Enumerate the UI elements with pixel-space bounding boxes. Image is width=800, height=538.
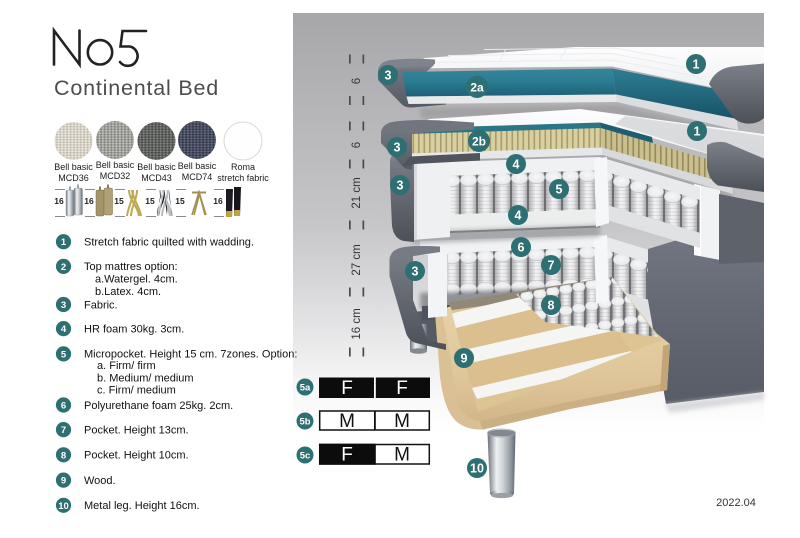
svg-text:2022.04: 2022.04 bbox=[716, 497, 756, 509]
svg-text:16: 16 bbox=[54, 196, 64, 206]
svg-text:4: 4 bbox=[513, 158, 520, 172]
svg-text:2: 2 bbox=[61, 262, 66, 273]
svg-text:1: 1 bbox=[61, 237, 67, 248]
svg-text:Fabric.: Fabric. bbox=[84, 299, 118, 311]
svg-text:8: 8 bbox=[61, 450, 66, 461]
svg-text:2a: 2a bbox=[470, 81, 484, 95]
svg-text:9: 9 bbox=[61, 476, 66, 487]
svg-text:F: F bbox=[341, 445, 353, 466]
svg-text:4: 4 bbox=[515, 209, 522, 223]
svg-text:2b: 2b bbox=[472, 135, 486, 149]
svg-text:Micropocket. Height 15 cm. 7zo: Micropocket. Height 15 cm. 7zones. Optio… bbox=[84, 349, 297, 361]
svg-text:27 cm: 27 cm bbox=[351, 244, 363, 275]
svg-text:15: 15 bbox=[145, 196, 155, 206]
svg-text:15: 15 bbox=[175, 196, 185, 206]
svg-text:6: 6 bbox=[351, 78, 363, 84]
svg-text:MCD43: MCD43 bbox=[141, 173, 172, 183]
svg-text:Bell basic: Bell basic bbox=[54, 162, 93, 172]
svg-text:Roma: Roma bbox=[231, 162, 255, 172]
svg-text:5a: 5a bbox=[300, 383, 311, 394]
svg-text:3: 3 bbox=[385, 69, 392, 83]
svg-text:1: 1 bbox=[694, 125, 701, 139]
svg-text:Top mattres option:: Top mattres option: bbox=[84, 261, 178, 273]
svg-text:3: 3 bbox=[397, 179, 404, 193]
svg-text:7: 7 bbox=[548, 259, 555, 273]
svg-text:M: M bbox=[394, 411, 410, 432]
svg-text:Bell basic: Bell basic bbox=[178, 161, 217, 171]
svg-text:5b: 5b bbox=[299, 417, 310, 428]
svg-text:F: F bbox=[396, 378, 408, 399]
svg-text:b.Latex. 4cm.: b.Latex. 4cm. bbox=[95, 286, 161, 298]
svg-text:4: 4 bbox=[61, 324, 67, 335]
svg-text:stretch fabric: stretch fabric bbox=[217, 173, 269, 183]
svg-text:M: M bbox=[339, 411, 355, 432]
svg-text:6: 6 bbox=[518, 241, 525, 255]
svg-text:Wood.: Wood. bbox=[84, 475, 116, 487]
svg-text:Bell basic: Bell basic bbox=[137, 162, 176, 172]
svg-text:MCD32: MCD32 bbox=[100, 171, 131, 181]
svg-text:Polyurethane foam 25kg. 2cm.: Polyurethane foam 25kg. 2cm. bbox=[84, 400, 233, 412]
svg-text:Stretch fabric quilted with wa: Stretch fabric quilted with wadding. bbox=[84, 237, 254, 249]
svg-text:M: M bbox=[394, 445, 410, 466]
svg-text:21 cm: 21 cm bbox=[351, 177, 363, 208]
svg-text:5: 5 bbox=[61, 349, 67, 360]
svg-text:6: 6 bbox=[61, 401, 66, 412]
svg-text:Pocket. Height 13cm.: Pocket. Height 13cm. bbox=[84, 424, 189, 436]
svg-text:a. Firm/ firm: a. Firm/ firm bbox=[97, 360, 156, 372]
svg-text:8: 8 bbox=[548, 299, 555, 313]
svg-text:3: 3 bbox=[61, 300, 66, 311]
svg-text:Metal leg. Height 16cm.: Metal leg. Height 16cm. bbox=[84, 500, 200, 512]
svg-text:5: 5 bbox=[556, 183, 563, 197]
svg-text:16 cm: 16 cm bbox=[351, 308, 363, 339]
svg-text:Pocket. Height 10cm.: Pocket. Height 10cm. bbox=[84, 450, 189, 462]
svg-text:10: 10 bbox=[58, 501, 69, 512]
svg-text:b. Medium/ medium: b. Medium/ medium bbox=[97, 372, 194, 384]
svg-text:10: 10 bbox=[470, 462, 484, 476]
svg-text:a.Watergel. 4cm.: a.Watergel. 4cm. bbox=[95, 274, 178, 286]
svg-text:9: 9 bbox=[461, 352, 468, 366]
svg-text:MCD74: MCD74 bbox=[182, 172, 213, 182]
svg-text:5c: 5c bbox=[300, 451, 311, 462]
svg-text:F: F bbox=[341, 378, 353, 399]
svg-text:MCD36: MCD36 bbox=[58, 173, 89, 183]
svg-text:3: 3 bbox=[412, 265, 419, 279]
svg-text:16: 16 bbox=[84, 196, 94, 206]
svg-text:c. Firm/ medium: c. Firm/ medium bbox=[97, 385, 176, 397]
svg-text:1: 1 bbox=[693, 58, 700, 72]
svg-text:15: 15 bbox=[114, 196, 124, 206]
svg-text:Bell basic: Bell basic bbox=[96, 160, 135, 170]
svg-text:Continental Bed: Continental Bed bbox=[54, 76, 219, 100]
svg-text:7: 7 bbox=[61, 425, 66, 436]
svg-text:16: 16 bbox=[213, 196, 223, 206]
svg-text:6: 6 bbox=[351, 142, 363, 148]
svg-text:HR foam 30kg. 3cm.: HR foam 30kg. 3cm. bbox=[84, 323, 184, 335]
svg-text:3: 3 bbox=[394, 141, 401, 155]
